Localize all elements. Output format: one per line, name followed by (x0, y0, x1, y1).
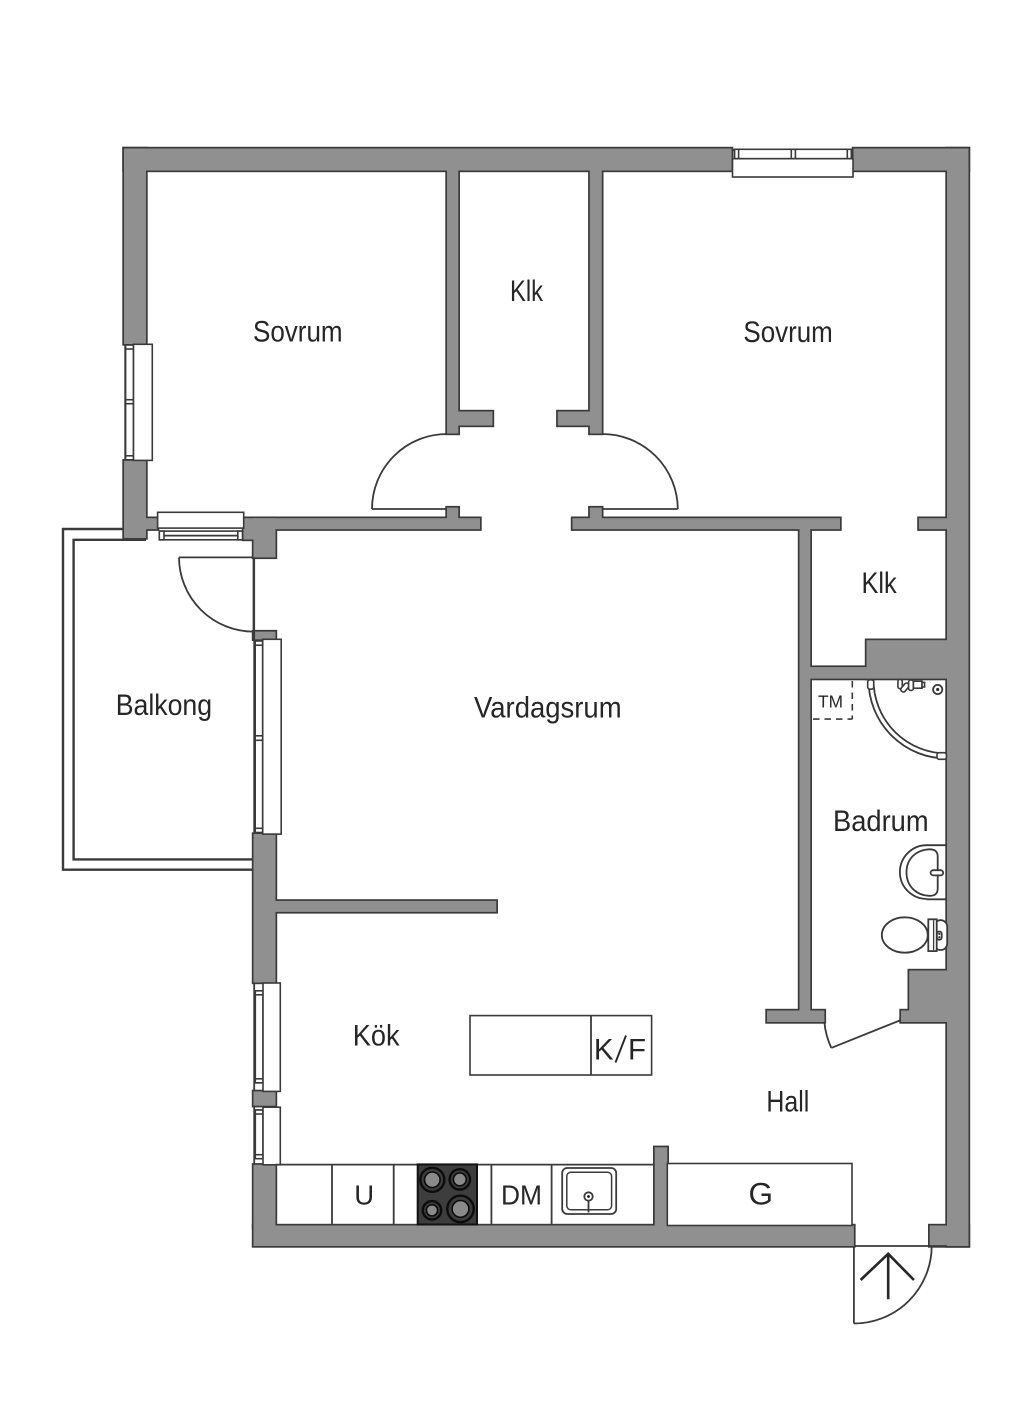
svg-text:Balkong: Balkong (116, 689, 212, 722)
svg-text:Vardagsrum: Vardagsrum (474, 692, 622, 725)
svg-text:Sovrum: Sovrum (253, 316, 343, 349)
svg-text:F: F (628, 1033, 646, 1066)
svg-text:G: G (749, 1176, 774, 1212)
svg-text:U: U (354, 1179, 374, 1210)
svg-text:Badrum: Badrum (833, 805, 929, 838)
svg-text:Klk: Klk (510, 275, 543, 308)
svg-text:Hall: Hall (766, 1086, 809, 1119)
svg-text:TM: TM (818, 692, 843, 712)
svg-text:K: K (594, 1033, 614, 1066)
svg-text:DM: DM (501, 1179, 542, 1210)
svg-text:Kök: Kök (353, 1020, 400, 1053)
svg-text:Sovrum: Sovrum (743, 316, 832, 349)
svg-text:Klk: Klk (862, 567, 897, 600)
